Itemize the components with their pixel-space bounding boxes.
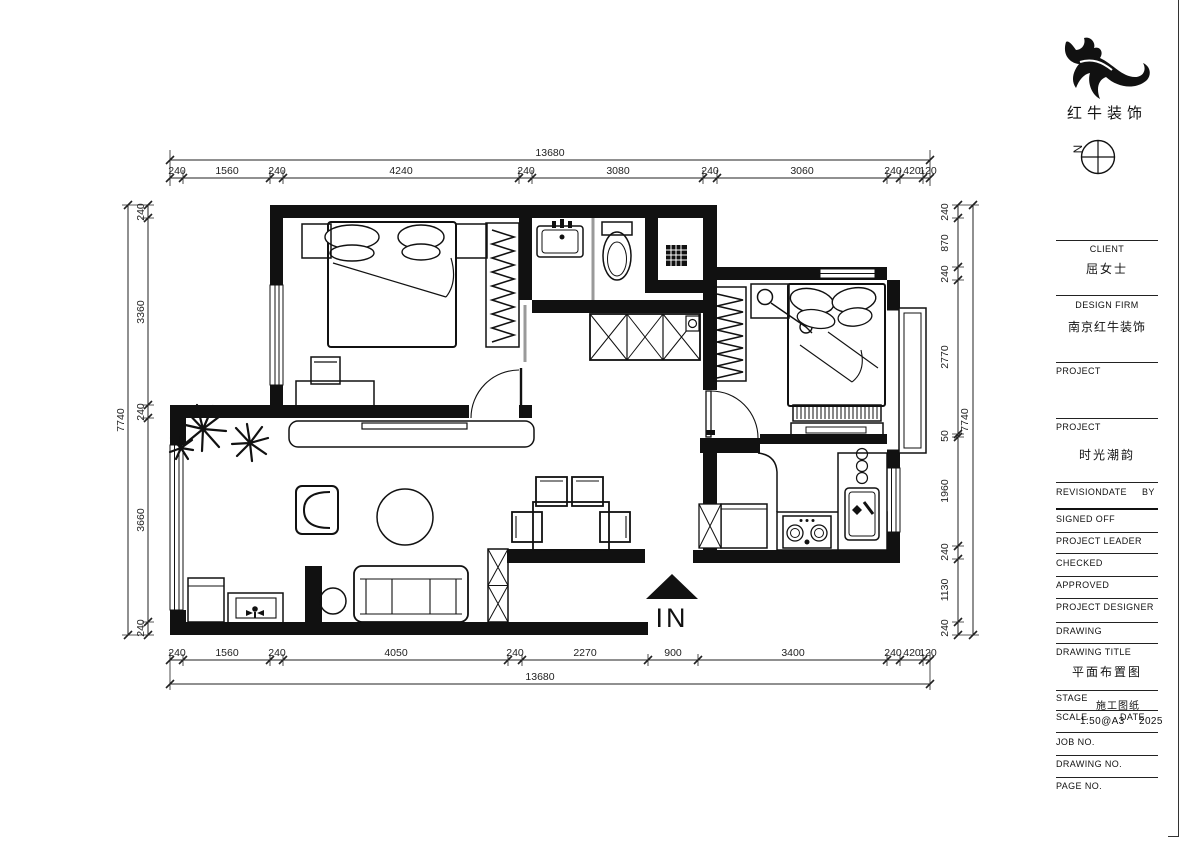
blanket-fold (333, 258, 454, 297)
entrance-label: IN (656, 603, 689, 633)
bedroom2-bay-window (887, 308, 926, 453)
project-designer-label: PROJECT DESIGNER (1056, 602, 1154, 612)
dim-label: 120 (919, 165, 937, 177)
brand-logo: 红牛装饰 (1065, 38, 1150, 122)
checked-label: CHECKED (1056, 558, 1103, 568)
drawing-label: DRAWING (1056, 626, 1102, 636)
dim-label: 3660 (135, 508, 147, 532)
divider (1056, 240, 1158, 241)
cabinet-x-icon (590, 314, 700, 360)
drawing-no-label: DRAWING NO. (1056, 759, 1122, 769)
dim-label: 240 (268, 165, 286, 177)
dim-label: 4240 (389, 165, 413, 177)
sofa-cushions (360, 579, 462, 614)
dim-label: 3360 (135, 300, 147, 324)
sink-basin (542, 230, 578, 253)
entrance-arrow-icon (646, 574, 698, 599)
dim-labels-top: 13680 240 1560 240 4240 240 3080 240 306… (168, 147, 937, 177)
dim-label: 2770 (939, 345, 951, 369)
divider (1056, 576, 1158, 577)
dim-label: 240 (884, 165, 902, 177)
radiator-fins (797, 407, 877, 419)
side-stool (320, 588, 346, 614)
dim-label: 13680 (535, 147, 564, 159)
stove-knob (812, 519, 815, 522)
round-table (377, 489, 433, 545)
desk-chair (311, 357, 340, 384)
dim-label: 2270 (573, 647, 597, 659)
divider (1056, 482, 1158, 483)
date-value: 2025 (1139, 716, 1163, 727)
divider (1056, 508, 1158, 510)
counter-edge (758, 453, 777, 512)
blanket-fold (800, 332, 878, 382)
hanger-zigzag-icon (717, 294, 743, 378)
nightstand (751, 284, 789, 318)
dim-labels-bottom: 13680 240 1560 240 4050 240 2270 900 340… (168, 647, 937, 683)
bedroom1-window (270, 285, 283, 385)
design-firm-value: 南京红牛装饰 (1056, 318, 1158, 335)
page-no-label: PAGE NO. (1056, 781, 1102, 791)
dim-label: 240 (168, 647, 186, 659)
dim-label: 3060 (790, 165, 814, 177)
living-room-window (170, 445, 183, 610)
north-arrow: N (1071, 141, 1115, 174)
stage-label: STAGE (1056, 693, 1088, 703)
walls (170, 205, 900, 635)
dim-label: 240 (135, 203, 147, 221)
dim-label: 240 (939, 543, 951, 561)
divider (1056, 553, 1158, 554)
dim-label: 3080 (606, 165, 630, 177)
scale-value: 1:50@A3 (1080, 716, 1125, 727)
divider (1056, 710, 1158, 711)
client-label: CLIENT (1056, 244, 1158, 254)
dim-label: 240 (135, 619, 147, 637)
drawing-sheet: IN 13680 240 1560 240 4240 240 3080 240 … (0, 0, 1200, 855)
entrance-marker: IN (646, 574, 698, 633)
revision-label: REVISION (1056, 487, 1102, 497)
brand-name: 红牛装饰 (1067, 104, 1147, 122)
drawing-title-label: DRAWING TITLE (1056, 647, 1131, 657)
door-swing-arc (711, 391, 758, 438)
hall-cabinet (590, 314, 700, 360)
client-value: 屈女士 (1056, 260, 1158, 277)
dim-label: 50 (939, 430, 951, 442)
date-label: DATE (1102, 487, 1127, 497)
divider (1056, 777, 1158, 778)
divider (1056, 295, 1158, 296)
divider (1056, 690, 1158, 691)
tv-console (289, 421, 534, 447)
dim-label: 240 (506, 647, 524, 659)
dim-label: 7740 (115, 408, 127, 432)
divider (1056, 622, 1158, 623)
dim-labels-right: 7740 240 870 240 2770 50 1960 240 1130 2… (939, 203, 971, 637)
project-label: PROJECT (1056, 366, 1101, 376)
stove-knob (806, 519, 809, 522)
bedroom2-top-window (820, 269, 875, 278)
sheet-border (1168, 836, 1179, 837)
dim-label: 1560 (215, 165, 239, 177)
faucet-icon (552, 219, 572, 228)
stove-knob (800, 519, 803, 522)
drain-dot (560, 235, 565, 240)
toilet-tank (602, 222, 632, 235)
dim-label: 240 (939, 265, 951, 283)
bedroom2-furniture (706, 284, 885, 439)
divider (1056, 418, 1158, 419)
dining-table (533, 502, 609, 550)
divider (1056, 643, 1158, 644)
dim-label: 240 (268, 647, 286, 659)
cabinet-x-icon (488, 549, 508, 622)
fridge (721, 504, 767, 548)
job-no-label: JOB NO. (1056, 737, 1095, 747)
desk (296, 381, 374, 408)
dim-label: 7740 (959, 408, 971, 432)
door-swing-arc (471, 370, 519, 418)
dim-label: 1560 (215, 647, 239, 659)
floor-plan-drawing: IN 13680 240 1560 240 4240 240 3080 240 … (0, 0, 1200, 855)
armchair-cushion (304, 492, 330, 528)
dim-label: 870 (939, 234, 951, 252)
bull-swoosh-icon (1065, 38, 1150, 99)
bench-detail (806, 427, 866, 433)
bedroom1-furniture (296, 222, 521, 418)
kitchen-fixtures (699, 449, 887, 551)
door-handle (706, 430, 715, 435)
dim-label: 1130 (939, 579, 951, 602)
hanger-zigzag-icon (492, 230, 514, 342)
nightstand (456, 224, 487, 258)
dim-label: 240 (168, 165, 186, 177)
toilet-bowl-inner (608, 242, 627, 276)
divider (1056, 362, 1158, 363)
design-firm-label: DESIGN FIRM (1056, 300, 1158, 310)
dim-label: 240 (701, 165, 719, 177)
drawing-title-value: 平面布置图 (1056, 663, 1158, 680)
by-label: BY (1142, 487, 1155, 497)
dim-label: 120 (919, 647, 937, 659)
divider (1056, 755, 1158, 756)
tv (362, 423, 467, 429)
stove-knob (805, 540, 810, 545)
approved-label: APPROVED (1056, 580, 1109, 590)
project-label: PROJECT (1056, 422, 1101, 432)
kitchen-window (887, 468, 900, 532)
divider (1056, 598, 1158, 599)
dim-label: 240 (939, 619, 951, 637)
dim-label: 900 (664, 647, 682, 659)
faucet-icon (252, 606, 258, 612)
north-label: N (1071, 145, 1085, 154)
divider (1056, 532, 1158, 533)
project-value: 时光潮韵 (1056, 446, 1158, 463)
dim-label: 240 (939, 203, 951, 221)
pillow-icon (330, 245, 374, 261)
dim-label: 13680 (525, 671, 554, 683)
dim-label: 1960 (939, 479, 951, 503)
dim-label: 3400 (781, 647, 805, 659)
lamp-icon (758, 290, 773, 305)
floor-drain-icon (666, 245, 687, 266)
living-dining-furniture (170, 405, 630, 623)
dim-label: 240 (884, 647, 902, 659)
signed-off-label: SIGNED OFF (1056, 514, 1115, 524)
pillow-icon (402, 244, 440, 260)
storage-cabinet (188, 578, 224, 622)
sheet-border (1178, 0, 1179, 836)
divider (1056, 732, 1158, 733)
dim-label: 240 (517, 165, 535, 177)
dim-label: 240 (135, 403, 147, 421)
project-leader-label: PROJECT LEADER (1056, 536, 1142, 546)
dim-labels-left: 7740 240 3360 240 3660 240 (115, 203, 147, 637)
dim-label: 4050 (384, 647, 408, 659)
